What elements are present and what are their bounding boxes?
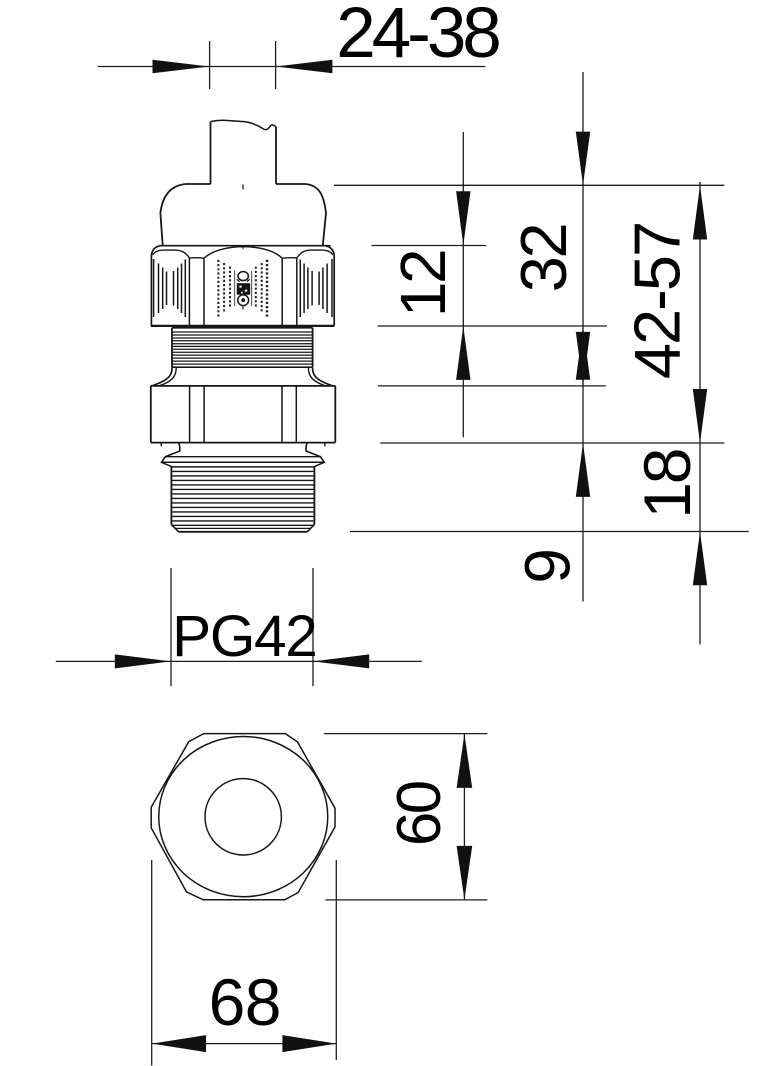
- svg-text:12: 12: [387, 251, 459, 317]
- svg-text:60: 60: [385, 781, 454, 846]
- svg-text:68: 68: [209, 965, 281, 1039]
- svg-text:42-57: 42-57: [620, 223, 693, 379]
- svg-text:32: 32: [507, 225, 580, 293]
- svg-text:9: 9: [512, 548, 584, 584]
- svg-text:18: 18: [630, 450, 704, 519]
- svg-text:24-38: 24-38: [336, 0, 499, 73]
- svg-text:PG42: PG42: [172, 604, 316, 669]
